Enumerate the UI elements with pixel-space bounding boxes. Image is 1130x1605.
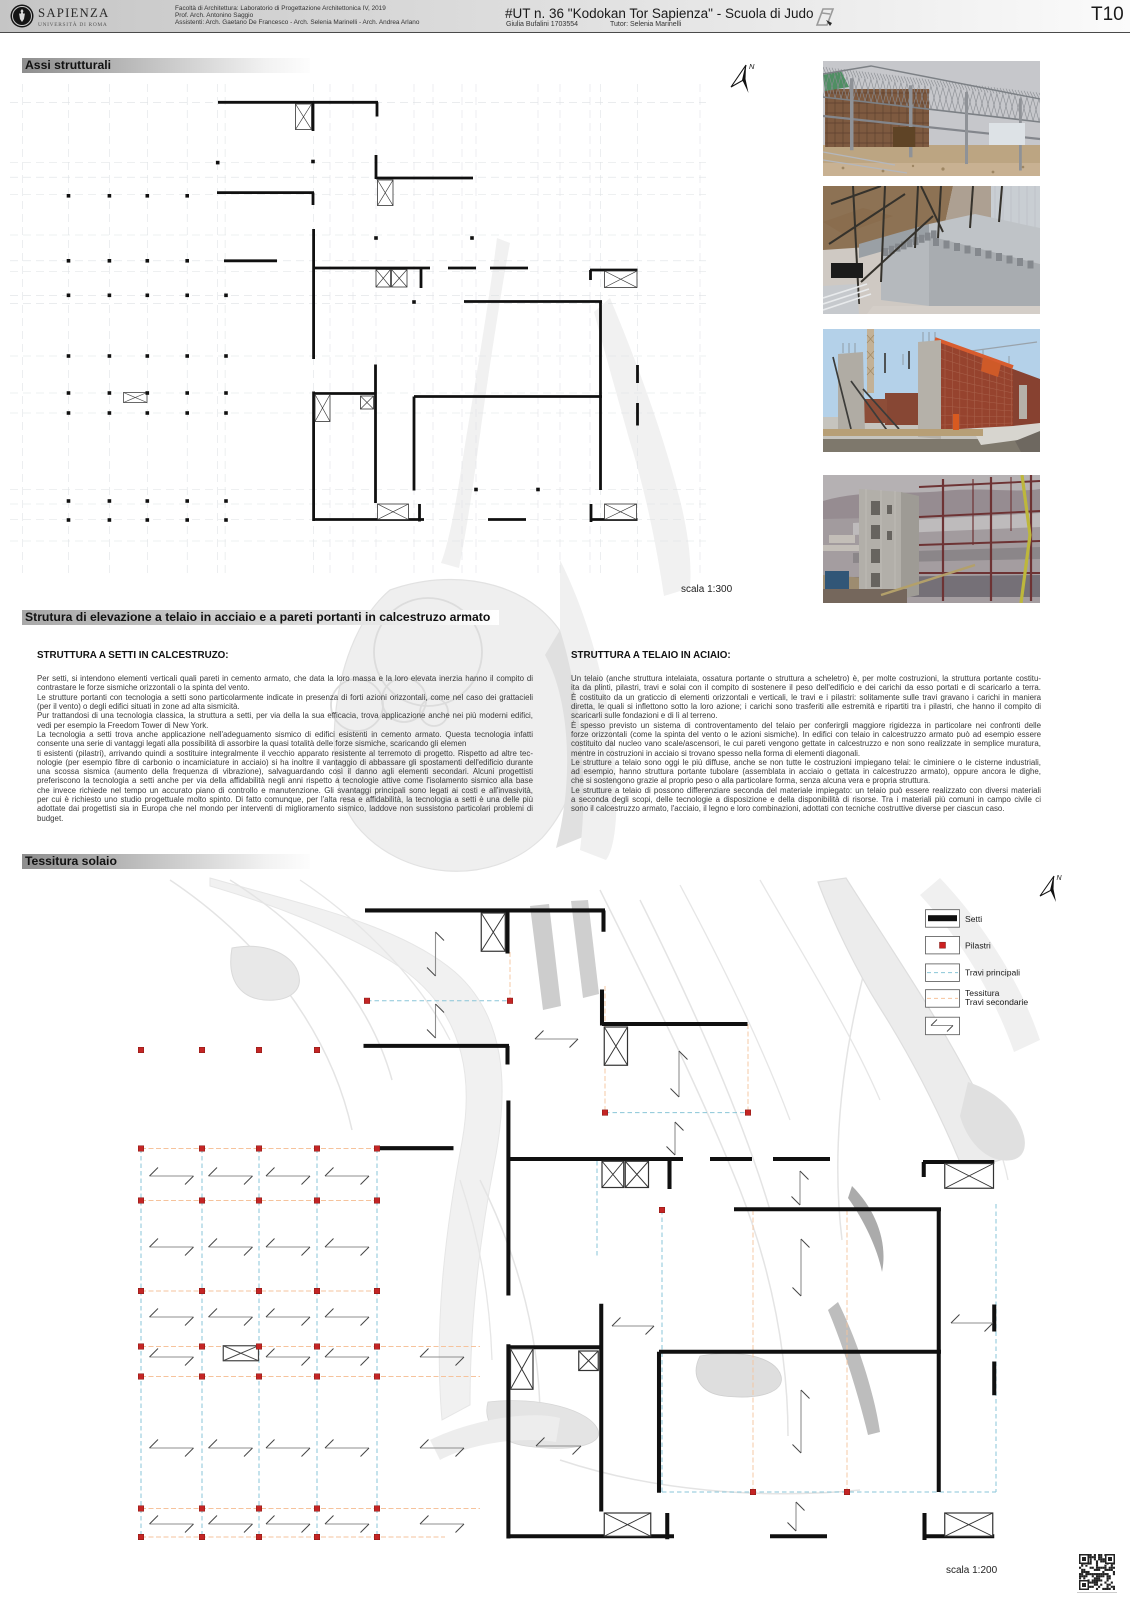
svg-text:N: N <box>749 62 755 71</box>
svg-text:Travi principali: Travi principali <box>965 968 1020 978</box>
svg-text:Travi secondarie: Travi secondarie <box>965 997 1028 1007</box>
svg-text:Setti: Setti <box>965 914 982 924</box>
svg-text:Pilastri: Pilastri <box>965 941 991 951</box>
svg-text:N: N <box>1057 875 1063 882</box>
